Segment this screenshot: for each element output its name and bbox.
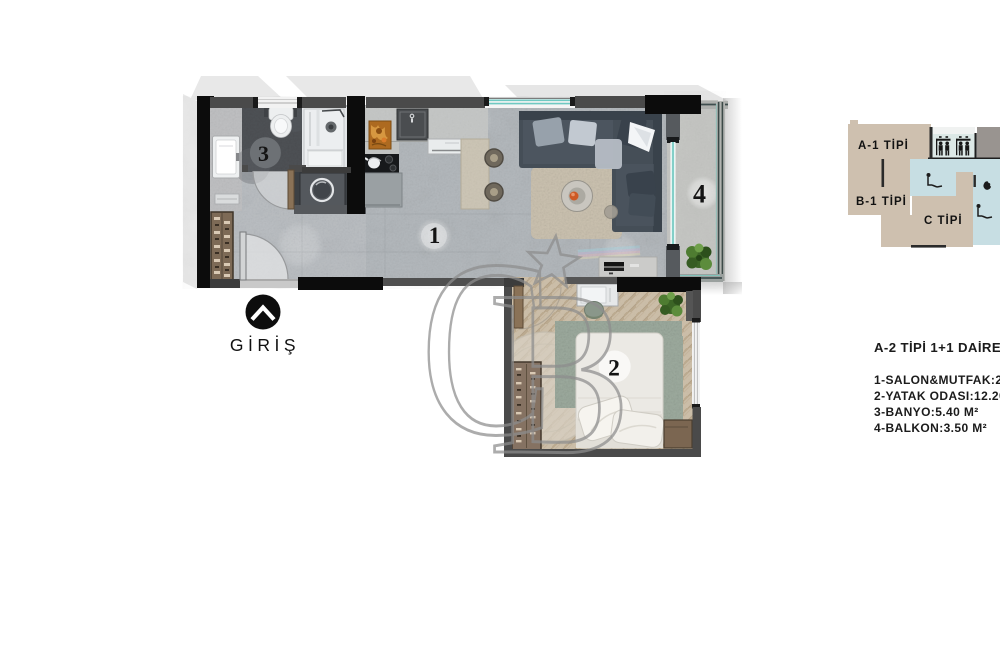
- svg-text:C TİPİ: C TİPİ: [924, 214, 963, 227]
- svg-text:B-1 TİPİ: B-1 TİPİ: [856, 195, 907, 208]
- svg-text:A-2 TİPİ 1+1 DAİRE PLANI: A-2 TİPİ 1+1 DAİRE PLANI: [874, 340, 1000, 355]
- svg-text:3-BANYO:5.40 M²: 3-BANYO:5.40 M²: [874, 405, 979, 419]
- svg-text:A-1 TİPİ: A-1 TİPİ: [858, 139, 909, 152]
- svg-text:3: 3: [258, 141, 269, 166]
- svg-text:4: 4: [693, 180, 706, 209]
- svg-text:B: B: [488, 242, 631, 503]
- svg-text:2-YATAK ODASI:12.20 M²: 2-YATAK ODASI:12.20 M²: [874, 389, 1000, 403]
- svg-text:GİRİŞ: GİRİŞ: [230, 335, 300, 355]
- svg-text:1-SALON&MUTFAK:25.60 M²: 1-SALON&MUTFAK:25.60 M²: [874, 373, 1000, 387]
- svg-text:4-BALKON:3.50 M²: 4-BALKON:3.50 M²: [874, 421, 987, 435]
